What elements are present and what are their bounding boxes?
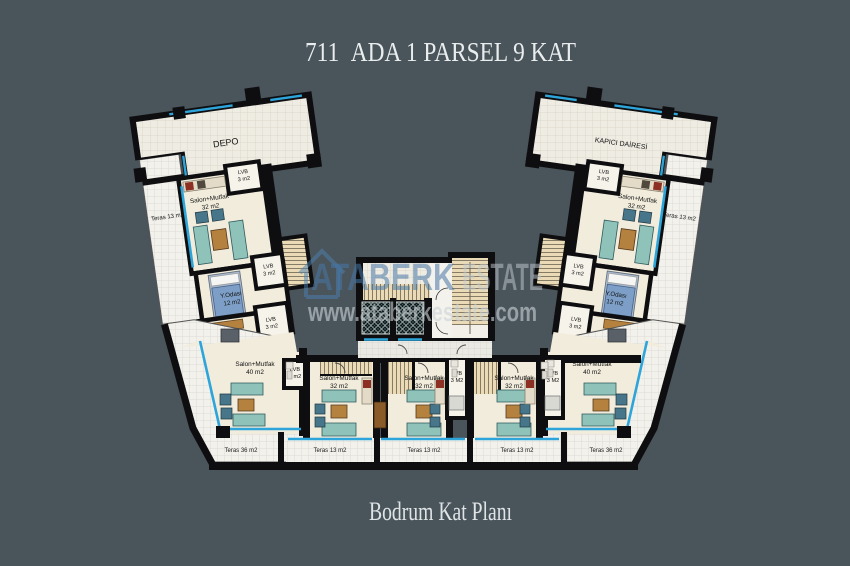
- svg-text:ESTATE: ESTATE: [462, 257, 543, 299]
- svg-text:Salon+Mutfak: Salon+Mutfak: [319, 375, 359, 382]
- svg-text:Salon+Mutfak: Salon+Mutfak: [235, 361, 275, 368]
- svg-text:711 ADA 1 PARSEL 9 KAT: 711 ADA 1 PARSEL 9 KAT: [305, 37, 576, 67]
- svg-text:Bodrum Kat Planı: Bodrum Kat Planı: [369, 497, 512, 526]
- svg-text:Teras 13 m2: Teras 13 m2: [500, 448, 534, 454]
- svg-text:3 M2: 3 M2: [451, 378, 463, 384]
- svg-text:40 m2: 40 m2: [246, 369, 264, 376]
- svg-text:Teras 13 m2: Teras 13 m2: [407, 448, 441, 454]
- svg-text:Salon+Mutfak: Salon+Mutfak: [404, 375, 444, 382]
- svg-text:Teras 36 m2: Teras 36 m2: [589, 448, 623, 454]
- svg-text:Teras 13 m2: Teras 13 m2: [313, 448, 347, 454]
- svg-text:3 M2: 3 M2: [547, 378, 559, 384]
- svg-text:32 m2: 32 m2: [330, 383, 348, 390]
- svg-text:32 m2: 32 m2: [415, 383, 433, 390]
- svg-text:40 m2: 40 m2: [583, 369, 601, 376]
- svg-text:Teras 36 m2: Teras 36 m2: [224, 448, 258, 454]
- svg-text:32 m2: 32 m2: [505, 383, 523, 390]
- svg-text:Salon+Mutfak: Salon+Mutfak: [494, 375, 534, 382]
- svg-text:ATABERK: ATABERK: [311, 257, 455, 299]
- svg-text:www.ataberkestate.com: www.ataberkestate.com: [307, 297, 537, 327]
